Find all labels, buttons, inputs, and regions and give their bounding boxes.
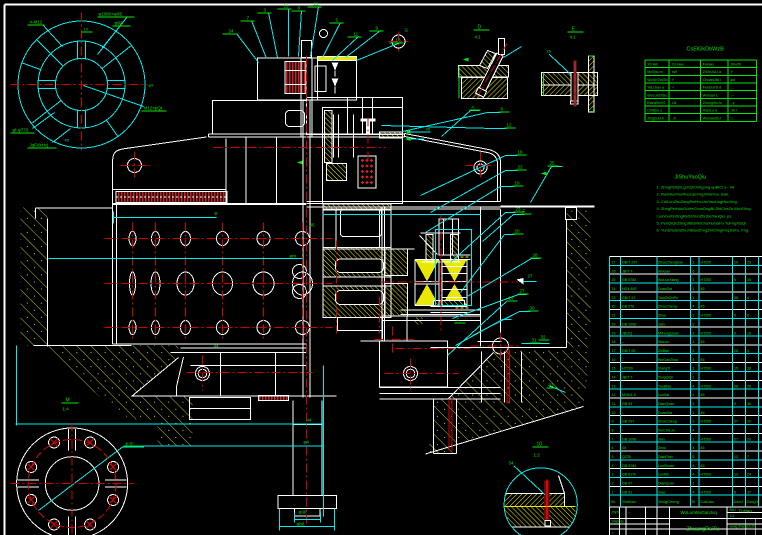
svg-text:10: 10	[734, 261, 738, 265]
svg-text:ZhouCheng: ZhouCheng	[658, 420, 677, 424]
svg-text:5: 5	[612, 455, 614, 459]
svg-text:..y: ..y	[731, 101, 735, 105]
svg-text:LuoMu: LuoMu	[658, 473, 669, 477]
svg-text:MoShu m: MoShu m	[647, 70, 662, 74]
svg-text:DanJ: DanJ	[734, 499, 743, 504]
svg-text:HT200: HT200	[701, 331, 712, 335]
svg-text:WoGanZhJ: WoGanZhJ	[703, 116, 721, 120]
svg-text:DaiHao: DaiHao	[623, 499, 637, 504]
svg-text:ChiShu z: ChiShu z	[647, 109, 662, 113]
svg-text:45: 45	[701, 393, 705, 397]
svg-text:GB 97: GB 97	[622, 482, 632, 486]
svg-text:1: 1	[693, 375, 695, 379]
svg-text:GB/T 65: GB/T 65	[622, 349, 635, 353]
svg-text:21: 21	[612, 314, 616, 318]
svg-text:45: 45	[65, 138, 70, 143]
svg-text:4: 4	[693, 490, 695, 494]
svg-text:45: 45	[701, 358, 705, 362]
svg-text:Q235: Q235	[622, 455, 631, 459]
svg-text:1: 1	[693, 261, 695, 265]
svg-text:16: 16	[612, 358, 616, 362]
svg-text:φ4: φ4	[304, 440, 310, 445]
svg-text:Xh Hm: Xh Hm	[647, 63, 658, 67]
svg-text:1. ZhngPeiQnLgJnQnXiXgJng quBi: 1. ZhngPeiQnLgJnQnXiXgJng quBiCi s-. 44	[657, 185, 735, 190]
svg-text:45: 45	[426, 127, 431, 132]
svg-text:JB/T 7-: JB/T 7-	[622, 375, 634, 379]
svg-text:xW: xW	[672, 70, 678, 74]
svg-text:1: 1	[693, 296, 695, 300]
svg-text:30: 30	[530, 306, 536, 311]
svg-text:A: A	[472, 105, 475, 110]
svg-text:Zhou: Zhou	[658, 446, 666, 450]
svg-text:31: 31	[532, 338, 538, 343]
svg-text:GB 5783: GB 5783	[622, 464, 636, 468]
svg-text:-i: -i	[612, 531, 614, 535]
svg-text:4-M12: 4-M12	[30, 20, 43, 25]
svg-text:ZongJi: ZongJi	[747, 499, 759, 504]
svg-text:4: 4	[693, 464, 695, 468]
svg-text:44: 44	[214, 344, 220, 349]
svg-text:1: 1	[693, 420, 695, 424]
svg-text:Xiao: Xiao	[658, 490, 665, 494]
svg-text:GB/T 97: GB/T 97	[622, 296, 635, 300]
svg-text:44: 44	[307, 418, 313, 423]
svg-text:MiFengQuan: MiFengQuan	[658, 331, 679, 335]
svg-text:HT200: HT200	[701, 473, 712, 477]
svg-text:JiShuYaoQiu: JiShuYaoQiu	[675, 175, 707, 181]
svg-text:Gong Zhang: Gong Zhang	[730, 525, 748, 529]
svg-text:15: 15	[734, 367, 738, 371]
svg-text:22: 22	[518, 165, 524, 170]
svg-text:27: 27	[612, 261, 616, 265]
svg-text:4: 4	[612, 464, 614, 468]
svg-text:.W.i: .W.i	[731, 109, 737, 113]
svg-text:10: 10	[612, 411, 616, 415]
svg-text:GB 1096: GB 1096	[622, 322, 636, 326]
svg-text:ZhongXinJu: ZhongXinJu	[703, 101, 722, 105]
svg-text:12: 12	[507, 123, 513, 128]
svg-text:WoLun: WoLun	[658, 340, 669, 344]
svg-text:ShenHe: ShenHe	[612, 520, 624, 524]
svg-text:3. ChiLunZhuZhngPeiHouJinYanLi: 3. ChiLunZhuZhngPeiHouJinYanLingHuoXng.	[657, 199, 738, 204]
svg-text:φm: φm	[290, 254, 297, 259]
svg-text:HT200: HT200	[701, 384, 712, 388]
svg-text:4: 4	[747, 296, 749, 300]
svg-text:GB 1096: GB 1096	[622, 437, 636, 441]
svg-text:21: 21	[314, 2, 320, 7]
svg-text:37: 37	[734, 437, 738, 441]
svg-text:23: 23	[612, 296, 616, 300]
svg-text:3: 3	[734, 314, 736, 318]
svg-text:JqFdxHcj: JqFdxHcj	[30, 143, 49, 148]
svg-text:GB 6170: GB 6170	[622, 473, 636, 477]
svg-text:.i...: .i...	[731, 116, 736, 120]
svg-text:36: 36	[747, 402, 751, 406]
svg-text:38: 38	[734, 384, 738, 388]
svg-text:5. PenQiQnZhngJiBioMnChuXiuGaF: 5. PenQiQnZhngJiBioMnChuXiuGaFu TuFngXiu…	[657, 221, 748, 226]
svg-text:4:1: 4:1	[570, 35, 577, 40]
svg-text:TongQiQi: TongQiQi	[658, 375, 673, 379]
svg-text:24: 24	[747, 473, 751, 477]
svg-text:HT200: HT200	[701, 420, 712, 424]
svg-text:34: 34	[509, 461, 515, 466]
svg-text:9: 9	[612, 420, 614, 424]
svg-text:2: 2	[693, 322, 695, 326]
svg-text:φb6: φb6	[297, 522, 305, 527]
svg-text:2: 2	[612, 482, 614, 486]
svg-text:24: 24	[229, 29, 235, 34]
svg-text:37: 37	[747, 490, 751, 494]
svg-text:14: 14	[612, 375, 616, 379]
svg-text:ZhouChengGai: ZhouChengGai	[658, 261, 683, 265]
svg-text:19: 19	[612, 331, 616, 335]
svg-text:GB 5782: GB 5782	[622, 278, 636, 282]
svg-text:3: 3	[612, 473, 614, 477]
svg-text:12: 12	[734, 455, 738, 459]
svg-text:WoGanZhou: WoGanZhou	[658, 358, 678, 362]
svg-text:HT200: HT200	[701, 261, 712, 265]
svg-text:20: 20	[747, 437, 751, 441]
svg-text:F: F	[457, 318, 460, 323]
svg-text:20: 20	[612, 322, 616, 326]
svg-text:3: 3	[734, 402, 736, 406]
svg-text:JB/T 7-: JB/T 7-	[622, 269, 634, 273]
svg-text:8: 8	[612, 429, 614, 433]
svg-text:CsElGkDbWzB: CsElGkDbWzB	[687, 47, 725, 53]
svg-text:Zhou: Zhou	[658, 314, 666, 318]
svg-text:TuHao: TuHao	[739, 509, 753, 514]
svg-text:CaiLiao: CaiLiao	[701, 499, 715, 504]
svg-text:2. RunHuaYouRuoLanYngJiXieYou.: 2. RunHuaYouRuoLanYngJiXieYou. Ban.	[657, 192, 730, 197]
svg-text:4: 4	[693, 384, 695, 388]
svg-text:BianWeiXS: BianWeiXS	[647, 101, 666, 105]
svg-text:Cs Hao: Cs Hao	[672, 63, 684, 67]
svg-text:TiaoZhDnPn: TiaoZhDnPn	[658, 296, 678, 300]
svg-text:17: 17	[612, 349, 616, 353]
svg-text:6: 6	[693, 269, 695, 273]
svg-text:1: 1	[693, 411, 695, 415]
svg-text:Sl: Sl	[692, 499, 696, 504]
svg-text:WoGnTouSh: WoGnTouSh	[647, 78, 667, 82]
svg-text:1: 1	[693, 482, 695, 486]
svg-text:24: 24	[612, 287, 616, 291]
svg-text:7: 7	[747, 455, 749, 459]
svg-text:20: 20	[515, 229, 521, 234]
svg-text:33: 33	[549, 383, 555, 388]
svg-text:HG4-692: HG4-692	[622, 287, 637, 291]
svg-text:1:4: 1:4	[63, 407, 70, 412]
svg-text:Jian: Jian	[658, 322, 665, 326]
svg-text:φ: φ	[215, 211, 218, 216]
svg-text:φl-φ770: φl-φ770	[13, 128, 29, 133]
svg-text:GB 276: GB 276	[622, 305, 634, 309]
svg-text:4: 4	[693, 429, 695, 433]
svg-text:ZhouCheng: ZhouCheng	[658, 305, 677, 309]
svg-text:26: 26	[547, 49, 552, 54]
svg-text:1: 1	[693, 278, 695, 282]
svg-text:5: 5	[734, 278, 736, 282]
svg-text:1: 1	[693, 340, 695, 344]
svg-text:25: 25	[550, 161, 556, 166]
svg-text:GB 297: GB 297	[622, 420, 634, 424]
svg-text:DianQuan: DianQuan	[658, 402, 674, 406]
svg-text:φd: φd	[731, 78, 735, 82]
svg-text:1:2: 1:2	[534, 453, 541, 458]
svg-text:1: 1	[693, 367, 695, 371]
svg-text:38: 38	[734, 296, 738, 300]
svg-text:4: 4	[693, 349, 695, 353]
svg-text:φ30: φ30	[299, 510, 307, 515]
svg-text:FuHao: FuHao	[703, 63, 714, 67]
svg-text:13: 13	[396, 38, 402, 43]
svg-text:LuoShuan: LuoShuan	[658, 464, 674, 468]
svg-text:Di Zh: Di Zh	[748, 525, 756, 529]
svg-text:12: 12	[612, 393, 616, 397]
svg-text:YaLiJiao α: YaLiJiao α	[647, 86, 664, 90]
svg-text:13: 13	[612, 384, 616, 388]
svg-text:1: 1	[693, 314, 695, 318]
svg-text:45: 45	[701, 464, 705, 468]
svg-text:ZhXnJuLi a: ZhXnJuLi a	[703, 70, 721, 74]
svg-text:φ1080×φ95: φ1080×φ95	[99, 12, 123, 17]
svg-text:DuanGai: DuanGai	[658, 411, 672, 415]
svg-text:ZhuangPeiTu: ZhuangPeiTu	[687, 527, 720, 533]
svg-text:ZhiBan: ZhiBan	[658, 349, 669, 353]
svg-text:28: 28	[533, 253, 539, 258]
svg-text:32: 32	[541, 335, 547, 340]
svg-text:19: 19	[515, 181, 521, 186]
svg-text:45: 45	[701, 305, 705, 309]
svg-text:WoLunZhSu: WoLunZhSu	[647, 93, 667, 97]
svg-text:M12×pQt: M12×pQt	[144, 106, 163, 111]
svg-text:1: 1	[693, 402, 695, 406]
svg-text:45: 45	[701, 446, 705, 450]
svg-text:4: 4	[693, 446, 695, 450]
svg-text:...: ...	[731, 86, 734, 90]
svg-text:4: 4	[747, 349, 749, 353]
svg-text:ZhiTu: ZhiTu	[612, 511, 621, 515]
svg-text:φ-Jp: φ-Jp	[126, 441, 135, 446]
svg-text:BiLi: BiLi	[730, 508, 736, 512]
svg-text:DianPian: DianPian	[658, 455, 673, 459]
svg-text:HT200: HT200	[701, 278, 712, 282]
svg-text:26: 26	[612, 269, 616, 273]
svg-text:45: 45	[701, 340, 705, 344]
svg-text:WoLunWoGanJsq: WoLunWoGanJsq	[681, 510, 718, 515]
svg-text:6. YunShuShiZhuYiBaoZhngZhiChn: 6. YunShuShiZhuYiBaoZhngZhiChngFnqJioFu.…	[657, 228, 750, 233]
svg-text:WoGan L: WoGan L	[703, 93, 718, 97]
svg-text:LouYouXinXngReShYunZhnDeYaoQiu: LouYouXinXngReShYunZhnDeYaoQiu. ps.	[657, 213, 733, 218]
svg-text:GB 93: GB 93	[622, 402, 632, 406]
svg-text:29: 29	[509, 296, 515, 301]
svg-text:4: 4	[693, 358, 695, 362]
svg-text:4: 4	[693, 473, 695, 477]
svg-text:23: 23	[516, 207, 522, 212]
svg-text:FenDuYd d: FenDuYd d	[703, 86, 721, 90]
svg-text:φ92: φ92	[115, 21, 123, 26]
svg-text:XiaoLu η: XiaoLu η	[703, 109, 717, 113]
svg-text:F: F	[523, 209, 526, 214]
svg-text:10: 10	[84, 27, 89, 32]
svg-text:..δ.: ..δ.	[672, 116, 677, 120]
svg-text:11: 11	[612, 402, 616, 406]
svg-text:7: 7	[612, 437, 614, 441]
svg-text:1:2: 1:2	[730, 514, 735, 518]
svg-text:25: 25	[612, 278, 616, 282]
svg-text:HT200: HT200	[701, 314, 712, 318]
svg-text:ChuanDBi i: ChuanDBi i	[703, 78, 721, 82]
svg-text:DuanGai: DuanGai	[658, 287, 672, 291]
svg-text:M16x1.5: M16x1.5	[622, 393, 636, 397]
svg-text:WoLunXiang: WoLunXiang	[658, 278, 679, 282]
svg-text:45: 45	[622, 446, 626, 450]
svg-text:27: 27	[520, 289, 526, 294]
svg-text:15: 15	[612, 367, 616, 371]
svg-text:4: 4	[693, 305, 695, 309]
svg-text:4:1: 4:1	[475, 35, 482, 40]
svg-text:35: 35	[747, 278, 751, 282]
svg-text:HT200: HT200	[701, 490, 712, 494]
svg-text:2: 2	[693, 331, 695, 335]
svg-text:26: 26	[747, 261, 751, 265]
svg-text:ShuZh: ShuZh	[731, 63, 742, 67]
svg-text:WoGan: WoGan	[658, 269, 670, 273]
svg-text:HT200: HT200	[701, 367, 712, 371]
svg-text:27: 27	[528, 274, 534, 279]
svg-text:JingDuDJi: JingDuDJi	[647, 116, 664, 120]
svg-text:XieChiLun: XieChiLun	[658, 429, 675, 433]
svg-text:5: 5	[734, 331, 736, 335]
svg-text:15: 15	[284, 4, 290, 9]
svg-text:Xh: Xh	[611, 499, 616, 504]
svg-text:4. ZhngPeiHouGuHeChunDngBi-Shi: 4. ZhngPeiHouGuHeChunDngBi-ShiChe2h WuYi…	[657, 206, 751, 211]
svg-text:38: 38	[747, 367, 751, 371]
svg-text:i-N: i-N	[672, 101, 677, 105]
svg-text:JB/ZQ: JB/ZQ	[622, 331, 632, 335]
svg-text:HT200: HT200	[622, 367, 633, 371]
svg-text:22: 22	[612, 305, 616, 309]
svg-text:XiangTi: XiangTi	[658, 367, 670, 371]
svg-text:18: 18	[612, 340, 616, 344]
svg-text:DianQuan: DianQuan	[658, 482, 674, 486]
svg-text:16: 16	[747, 331, 751, 335]
svg-text:1: 1	[693, 437, 695, 441]
svg-text:45: 45	[701, 411, 705, 415]
svg-text:YouBiao: YouBiao	[658, 384, 671, 388]
svg-text:-: -	[647, 511, 648, 515]
svg-text:G: G	[405, 28, 409, 33]
svg-text:MingCheng: MingCheng	[659, 499, 679, 504]
svg-text:φ9: φ9	[149, 83, 155, 88]
svg-text:11: 11	[354, 32, 359, 37]
svg-text:13: 13	[734, 473, 738, 477]
svg-text:26: 26	[747, 384, 751, 388]
svg-text:1: 1	[612, 490, 614, 494]
svg-text:-i: -i	[672, 86, 674, 90]
svg-text:GB 91: GB 91	[622, 490, 632, 494]
svg-text:GB/T 297: GB/T 297	[622, 261, 637, 265]
svg-text:6: 6	[612, 446, 614, 450]
svg-text:18: 18	[518, 150, 524, 155]
svg-text:1: 1	[693, 287, 695, 291]
svg-text:--: --	[628, 511, 630, 515]
svg-text:LuoSai: LuoSai	[658, 393, 669, 397]
svg-text:27: 27	[734, 420, 738, 424]
svg-text:45: 45	[310, 223, 316, 228]
svg-text:28: 28	[734, 349, 738, 353]
svg-text:Jian: Jian	[658, 437, 665, 441]
svg-text:10: 10	[747, 420, 751, 424]
svg-text:45: 45	[701, 287, 705, 291]
svg-text:5: 5	[734, 490, 736, 494]
svg-text:6: 6	[747, 314, 749, 318]
svg-text:HT200: HT200	[701, 437, 712, 441]
svg-text:6: 6	[693, 455, 695, 459]
svg-text:1: 1	[693, 393, 695, 397]
